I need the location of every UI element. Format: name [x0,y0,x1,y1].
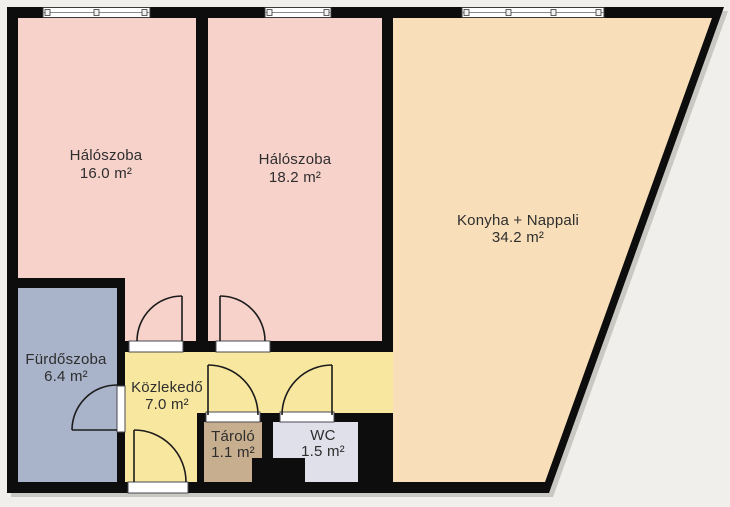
room-label-tarolo: Tároló [211,428,255,445]
window-1 [43,8,150,18]
room-area-haloszoba-1: 16.0 m² [80,165,132,182]
door-threshold-entrance [128,482,188,493]
room-label-furdoszoba: Fürdőszoba [25,351,107,368]
door-threshold-wc [280,412,334,422]
room-area-furdoszoba: 6.4 m² [44,368,88,385]
room-label-wc: WC [310,427,335,444]
room-area-wc: 1.5 m² [301,443,345,460]
room-area-tarolo: 1.1 m² [211,444,255,461]
window-3 [462,8,604,18]
shaft-block [252,458,305,490]
floor-plan-page: Hálószoba 16.0 m² Hálószoba 18.2 m² Kony… [0,0,730,507]
door-threshold-haloszoba-1 [129,341,183,352]
floor-plan-drawing: Hálószoba 16.0 m² Hálószoba 18.2 m² Kony… [0,0,730,507]
door-threshold-furdoszoba [117,386,125,432]
room-area-haloszoba-2: 18.2 m² [269,169,321,186]
room-floor-furdoszoba [18,288,117,482]
window-2 [265,8,331,18]
door-threshold-tarolo [206,412,260,422]
room-area-kozlekedo: 7.0 m² [145,396,189,413]
room-label-haloszoba-2: Hálószoba [259,151,332,168]
room-label-haloszoba-1: Hálószoba [70,147,143,164]
room-label-kozlekedo: Közlekedő [131,379,203,396]
door-threshold-haloszoba-2 [216,341,270,352]
room-label-konyha-nappali: Konyha + Nappali [457,212,579,229]
room-area-konyha-nappali: 34.2 m² [492,229,544,246]
